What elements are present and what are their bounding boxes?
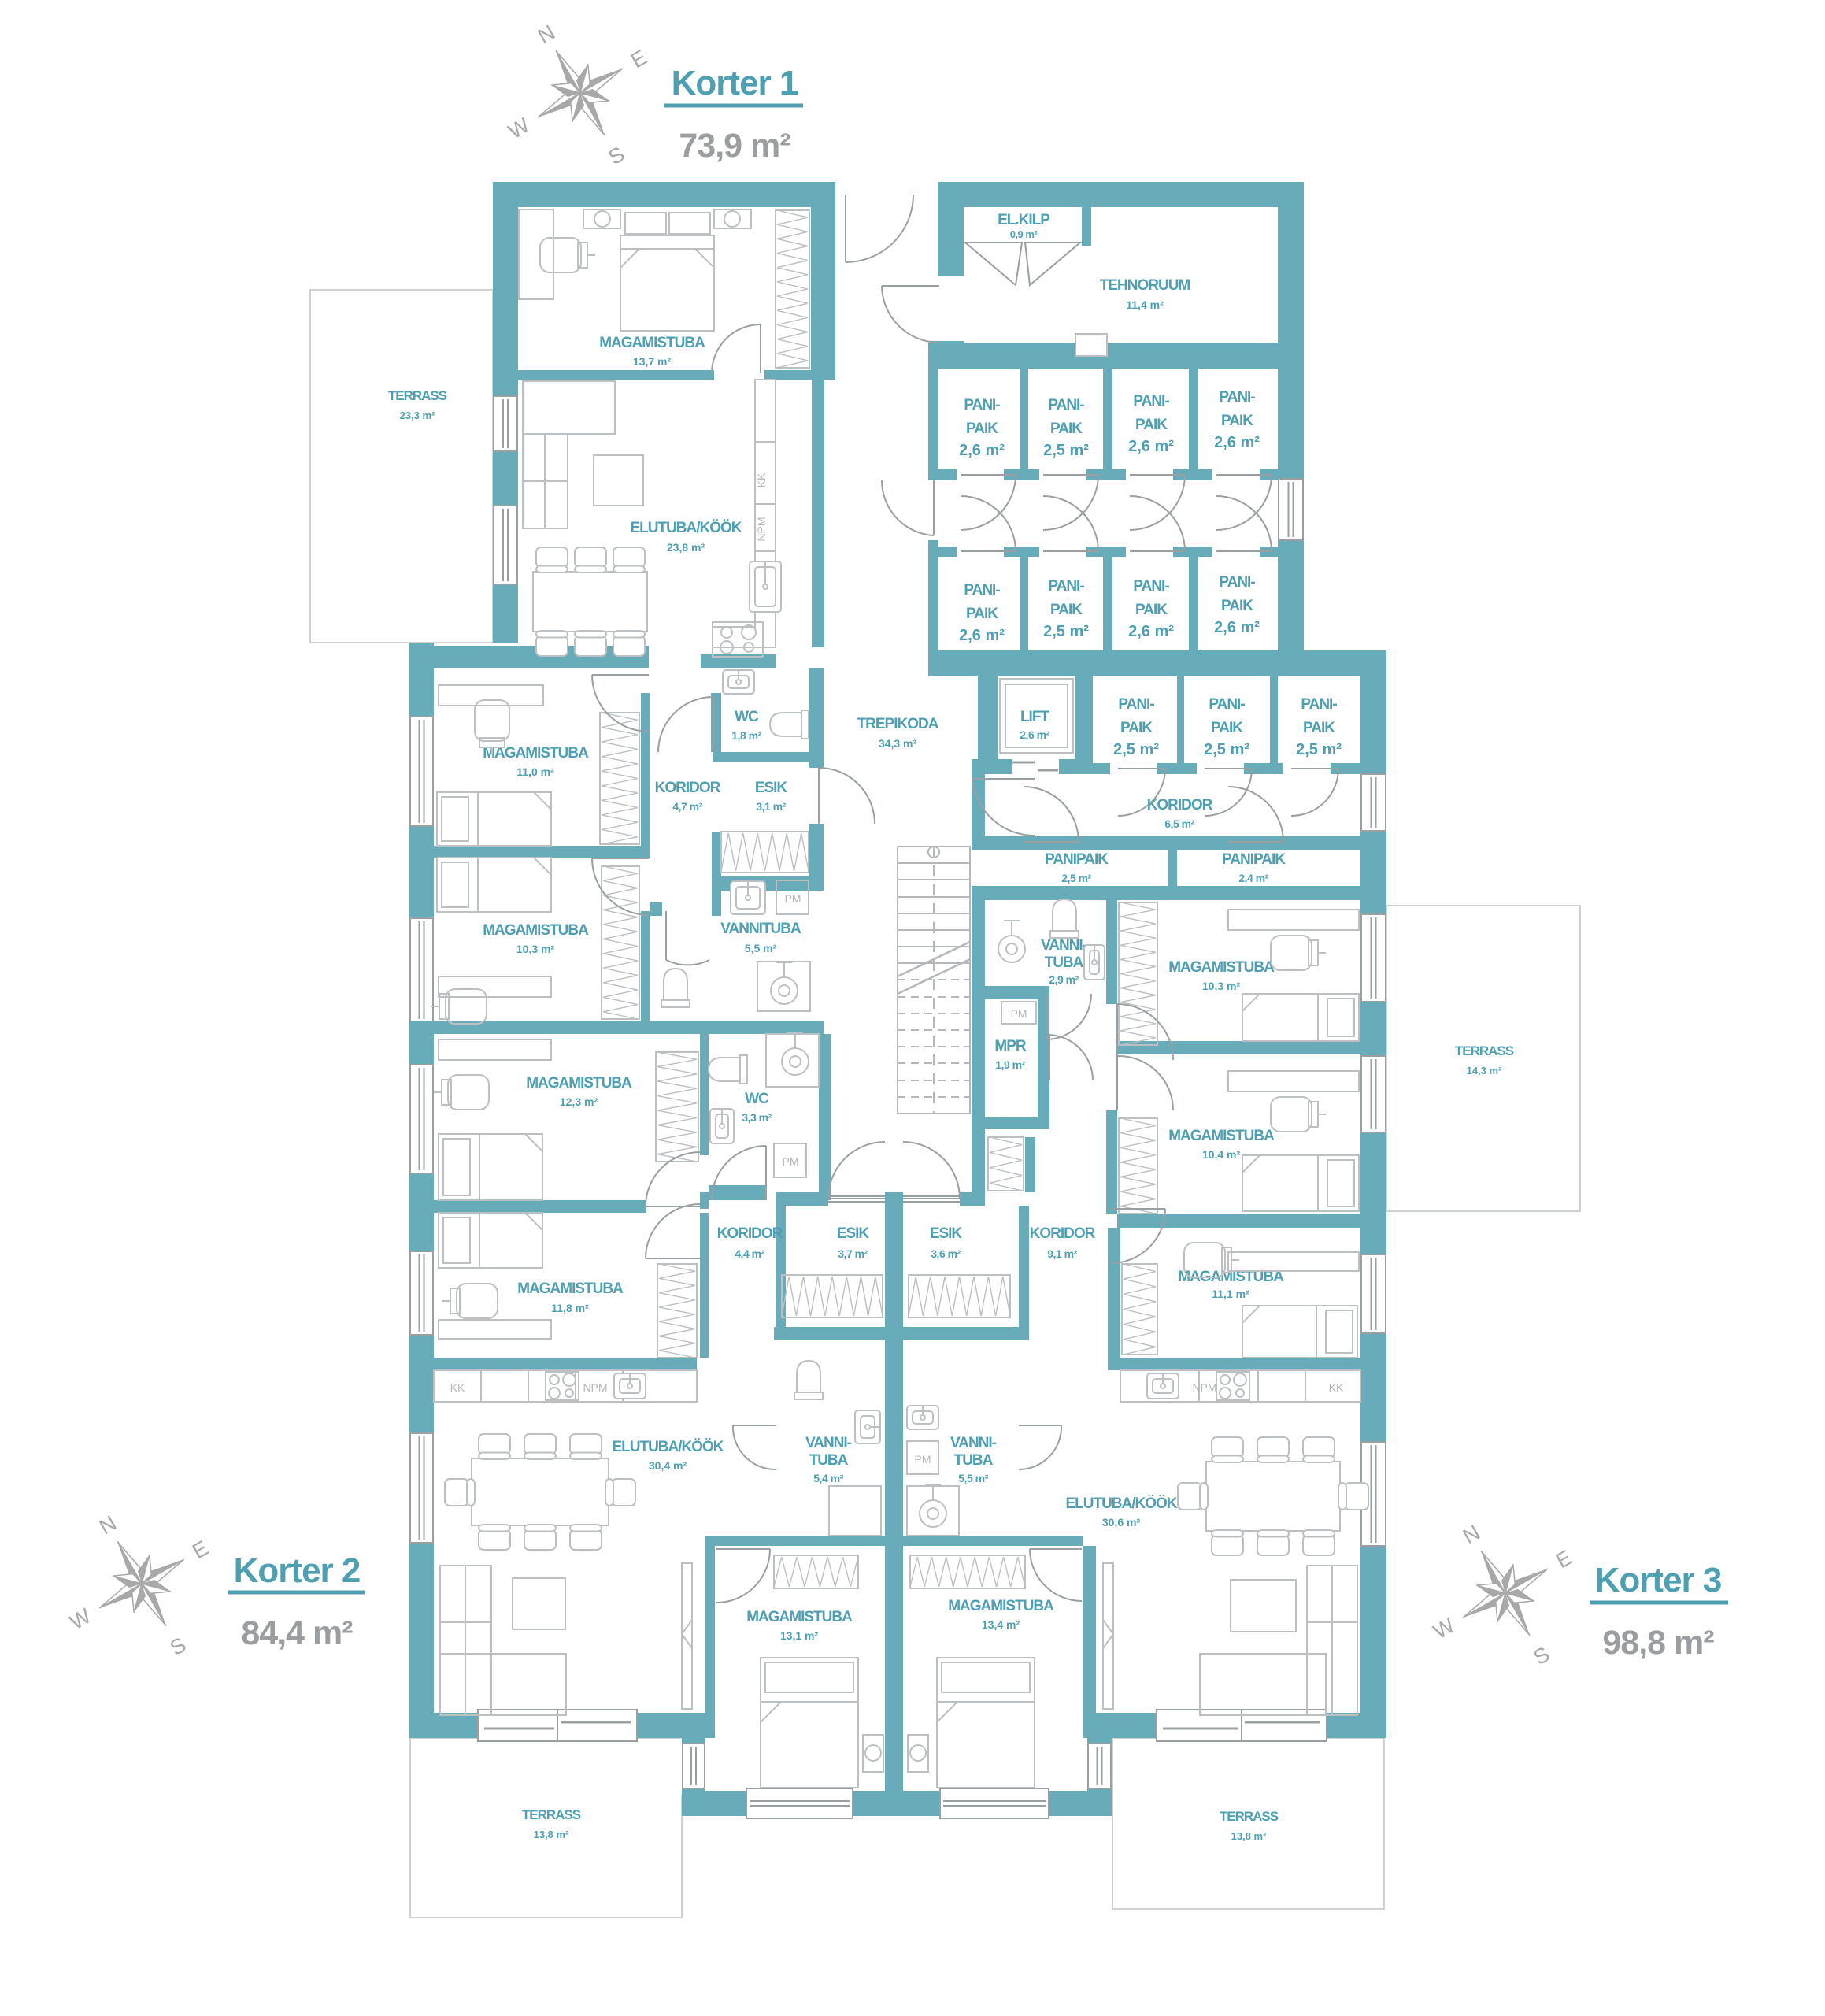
svg-text:11,1 m²: 11,1 m²	[1212, 1288, 1249, 1300]
svg-text:5,5 m²: 5,5 m²	[745, 942, 777, 954]
svg-text:PANI-: PANI-	[1048, 397, 1084, 413]
svg-text:PANIPAIK: PANIPAIK	[1222, 851, 1286, 868]
svg-text:VANNI-: VANNI-	[950, 1435, 997, 1451]
svg-text:5,5 m²: 5,5 m²	[958, 1472, 988, 1484]
svg-text:MAGAMISTUBA: MAGAMISTUBA	[948, 1598, 1054, 1614]
svg-text:23,3 m²: 23,3 m²	[400, 409, 435, 421]
svg-text:PAIK: PAIK	[966, 606, 998, 622]
svg-text:Korter 3: Korter 3	[1595, 1561, 1722, 1599]
svg-text:TUBA: TUBA	[809, 1452, 849, 1469]
svg-text:KORIDOR: KORIDOR	[717, 1225, 783, 1242]
svg-text:Korter 2: Korter 2	[234, 1551, 361, 1590]
svg-text:13,1 m²: 13,1 m²	[780, 1629, 819, 1642]
svg-text:3,1 m²: 3,1 m²	[756, 800, 786, 813]
svg-text:EL.KILP: EL.KILP	[998, 212, 1050, 228]
svg-text:2,5 m²: 2,5 m²	[1043, 623, 1089, 640]
svg-text:2,5 m²: 2,5 m²	[1043, 442, 1089, 459]
svg-text:3,3 m²: 3,3 m²	[742, 1111, 772, 1124]
svg-text:ESIK: ESIK	[837, 1225, 870, 1242]
svg-text:LIFT: LIFT	[1020, 709, 1049, 725]
svg-text:MPR: MPR	[994, 1038, 1027, 1054]
svg-text:TUBA: TUBA	[1045, 954, 1084, 971]
svg-text:MAGAMISTUBA: MAGAMISTUBA	[1168, 1128, 1275, 1144]
svg-text:PANI-: PANI-	[964, 582, 1000, 598]
svg-text:11,8 m²: 11,8 m²	[551, 1302, 589, 1314]
svg-text:23,8 m²: 23,8 m²	[667, 541, 705, 554]
svg-text:VANNI-: VANNI-	[1041, 937, 1087, 954]
svg-text:12,3 m²: 12,3 m²	[560, 1095, 598, 1108]
svg-text:4,7 m²: 4,7 m²	[672, 800, 702, 813]
svg-text:73,9 m²: 73,9 m²	[679, 127, 790, 165]
svg-text:ESIK: ESIK	[930, 1225, 963, 1242]
svg-text:PM: PM	[783, 1155, 799, 1168]
svg-text:2,6 m²: 2,6 m²	[1128, 623, 1174, 640]
svg-text:PANI-: PANI-	[1301, 696, 1337, 713]
svg-text:3,6 m²: 3,6 m²	[931, 1247, 961, 1260]
svg-text:TERRASS: TERRASS	[522, 1807, 581, 1822]
svg-text:PAIK: PAIK	[966, 421, 998, 437]
svg-text:13,4 m²: 13,4 m²	[982, 1618, 1020, 1631]
svg-text:2,6 m²: 2,6 m²	[959, 442, 1005, 459]
svg-text:9,1 m²: 9,1 m²	[1047, 1247, 1077, 1260]
svg-text:PANI-: PANI-	[1048, 578, 1084, 595]
svg-text:PAIK: PAIK	[1135, 602, 1168, 618]
svg-text:2,6 m²: 2,6 m²	[1020, 728, 1049, 741]
svg-text:PANI-: PANI-	[1133, 578, 1169, 595]
svg-text:PAIK: PAIK	[1211, 720, 1243, 736]
svg-text:MAGAMISTUBA: MAGAMISTUBA	[746, 1609, 853, 1625]
svg-text:PANI-: PANI-	[1219, 574, 1255, 591]
svg-text:84,4 m²: 84,4 m²	[241, 1614, 353, 1652]
svg-text:VANNITUBA: VANNITUBA	[720, 921, 801, 937]
svg-text:MAGAMISTUBA: MAGAMISTUBA	[526, 1075, 632, 1091]
svg-text:11,0 m²: 11,0 m²	[516, 765, 554, 778]
svg-text:30,6 m²: 30,6 m²	[1102, 1516, 1141, 1529]
svg-text:2,5 m²: 2,5 m²	[1296, 741, 1342, 758]
svg-text:TERRASS: TERRASS	[388, 388, 447, 403]
svg-text:WC: WC	[745, 1091, 769, 1107]
svg-text:KORIDOR: KORIDOR	[1030, 1225, 1096, 1242]
svg-text:ELUTUBA/KÖÖK: ELUTUBA/KÖÖK	[612, 1439, 724, 1455]
svg-text:4,4 m²: 4,4 m²	[735, 1247, 764, 1260]
svg-text:2,9 m²: 2,9 m²	[1049, 973, 1079, 986]
svg-text:TREPIKODA: TREPIKODA	[857, 716, 939, 732]
svg-text:2,5 m²: 2,5 m²	[1113, 741, 1159, 758]
svg-text:WC: WC	[735, 709, 759, 725]
svg-text:PANIPAIK: PANIPAIK	[1045, 851, 1109, 868]
svg-text:1,8 m²: 1,8 m²	[731, 729, 761, 742]
svg-text:10,4 m²: 10,4 m²	[1202, 1148, 1241, 1161]
svg-text:MAGAMISTUBA: MAGAMISTUBA	[517, 1280, 624, 1297]
svg-text:PAIK: PAIK	[1221, 598, 1253, 614]
svg-text:KORIDOR: KORIDOR	[1147, 797, 1213, 813]
svg-text:PAIK: PAIK	[1050, 602, 1083, 618]
svg-text:ELUTUBA/KÖÖK: ELUTUBA/KÖÖK	[630, 520, 742, 536]
svg-text:TERRASS: TERRASS	[1455, 1043, 1514, 1058]
svg-text:PAIK: PAIK	[1050, 421, 1083, 437]
svg-text:2,4 m²: 2,4 m²	[1238, 872, 1268, 884]
svg-text:Korter 1: Korter 1	[672, 64, 798, 102]
svg-text:10,3 m²: 10,3 m²	[1202, 980, 1241, 992]
svg-text:2,5 m²: 2,5 m²	[1061, 872, 1091, 884]
svg-text:PM: PM	[915, 1453, 931, 1466]
svg-text:ELUTUBA/KÖÖK: ELUTUBA/KÖÖK	[1065, 1495, 1177, 1512]
svg-text:NPM: NPM	[755, 517, 768, 541]
svg-text:3,7 m²: 3,7 m²	[838, 1247, 868, 1260]
svg-text:2,6 m²: 2,6 m²	[1128, 438, 1174, 455]
svg-text:PM: PM	[1011, 1007, 1027, 1020]
svg-text:PAIK: PAIK	[1120, 720, 1153, 736]
svg-text:14,3 m²: 14,3 m²	[1467, 1065, 1502, 1077]
svg-text:PAIK: PAIK	[1135, 417, 1168, 433]
svg-text:13,8 m²: 13,8 m²	[1231, 1830, 1267, 1842]
svg-text:MAGAMISTUBA: MAGAMISTUBA	[1168, 959, 1275, 976]
svg-text:VANNI-: VANNI-	[805, 1435, 852, 1451]
svg-text:11,4 m²: 11,4 m²	[1126, 298, 1164, 311]
svg-text:PANI-: PANI-	[964, 397, 1000, 413]
svg-text:NPM: NPM	[583, 1381, 607, 1394]
svg-text:KK: KK	[755, 472, 768, 487]
svg-text:13,7 m²: 13,7 m²	[633, 355, 672, 368]
svg-text:34,3 m²: 34,3 m²	[879, 737, 917, 750]
svg-text:2,6 m²: 2,6 m²	[1214, 434, 1260, 451]
svg-text:KK: KK	[450, 1381, 465, 1394]
svg-text:6,5 m²: 6,5 m²	[1164, 817, 1194, 830]
svg-text:2,5 m²: 2,5 m²	[1204, 741, 1249, 758]
svg-text:KK: KK	[1329, 1381, 1344, 1394]
svg-text:MAGAMISTUBA: MAGAMISTUBA	[483, 922, 589, 939]
svg-text:ESIK: ESIK	[755, 780, 788, 796]
svg-text:TEHNORUUM: TEHNORUUM	[1100, 277, 1190, 294]
svg-text:PANI-: PANI-	[1133, 393, 1169, 409]
svg-text:PANI-: PANI-	[1219, 389, 1255, 406]
svg-text:10,3 m²: 10,3 m²	[516, 943, 555, 955]
svg-text:98,8 m²: 98,8 m²	[1602, 1624, 1714, 1662]
svg-text:30,4 m²: 30,4 m²	[649, 1459, 687, 1472]
svg-text:PANI-: PANI-	[1209, 696, 1245, 713]
svg-text:PM: PM	[785, 892, 801, 905]
svg-text:PAIK: PAIK	[1303, 720, 1335, 736]
svg-text:TUBA: TUBA	[954, 1452, 994, 1469]
svg-text:NPM: NPM	[1192, 1381, 1216, 1394]
svg-text:TERRASS: TERRASS	[1220, 1809, 1279, 1824]
svg-text:0,9 m²: 0,9 m²	[1010, 228, 1038, 240]
svg-text:PAIK: PAIK	[1221, 413, 1253, 429]
svg-text:13,8 m²: 13,8 m²	[534, 1829, 569, 1840]
svg-text:1,9 m²: 1,9 m²	[995, 1058, 1025, 1071]
svg-text:MAGAMISTUBA: MAGAMISTUBA	[599, 335, 705, 351]
svg-text:PANI-: PANI-	[1118, 696, 1154, 713]
svg-text:2,6 m²: 2,6 m²	[1214, 619, 1260, 636]
svg-text:KORIDOR: KORIDOR	[655, 780, 721, 796]
svg-text:5,4 m²: 5,4 m²	[813, 1472, 843, 1484]
svg-text:2,6 m²: 2,6 m²	[959, 627, 1005, 644]
